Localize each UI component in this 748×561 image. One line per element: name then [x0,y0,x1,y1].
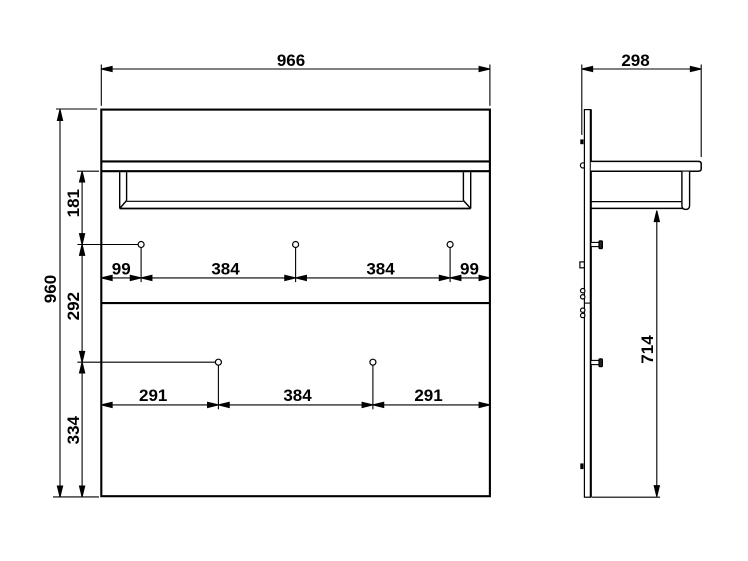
svg-text:384: 384 [211,259,240,278]
svg-text:960: 960 [41,275,60,303]
svg-text:334: 334 [64,415,83,444]
svg-text:292: 292 [64,292,83,320]
svg-text:291: 291 [139,386,167,405]
svg-text:384: 384 [366,259,395,278]
svg-text:99: 99 [112,259,131,278]
svg-text:181: 181 [64,189,83,217]
svg-text:298: 298 [621,51,649,70]
svg-text:714: 714 [638,335,657,364]
svg-text:384: 384 [283,386,312,405]
svg-text:99: 99 [460,259,479,278]
svg-text:966: 966 [277,51,305,70]
svg-text:291: 291 [414,386,442,405]
